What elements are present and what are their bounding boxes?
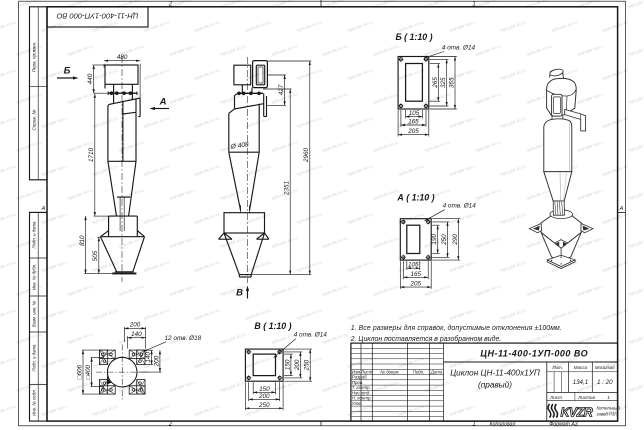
svg-text:12 отв. Ø18: 12 отв. Ø18	[165, 335, 202, 342]
svg-text:365: 365	[449, 77, 456, 88]
svg-text:150: 150	[284, 359, 291, 370]
svg-text:290: 290	[452, 234, 459, 246]
svg-text:Лит.: Лит.	[551, 365, 563, 370]
svg-text:Справ. №: Справ. №	[32, 110, 37, 131]
svg-text:250: 250	[441, 234, 448, 246]
svg-text:ЦН-11-400-1УП-000 ВО: ЦН-11-400-1УП-000 ВО	[480, 348, 588, 358]
svg-text:Лист: Лист	[549, 395, 562, 400]
svg-text:2960: 2960	[303, 148, 310, 164]
svg-text:250: 250	[304, 359, 311, 371]
svg-text:1 : 20: 1 : 20	[597, 379, 613, 386]
svg-text:140: 140	[131, 331, 142, 338]
svg-text:Лист: Лист	[360, 369, 373, 374]
svg-text:(правый): (правый)	[478, 381, 512, 390]
svg-text:265: 265	[432, 77, 439, 89]
svg-text:440: 440	[87, 73, 94, 84]
svg-text:325: 325	[440, 77, 447, 88]
svg-text:200: 200	[258, 393, 270, 400]
svg-text:810: 810	[79, 235, 86, 246]
svg-text:4 отв. Ø14: 4 отв. Ø14	[442, 44, 476, 51]
svg-text:205: 205	[410, 281, 422, 288]
svg-text:Копировал: Копировал	[490, 422, 516, 428]
svg-text:2. Циклон поставляется в разоб: 2. Циклон поставляется в разобранном вид…	[350, 335, 502, 343]
svg-text:А: А	[159, 97, 167, 108]
svg-text:KVZR: KVZR	[561, 406, 593, 420]
svg-text:А: А	[41, 206, 46, 212]
svg-text:А: А	[619, 206, 624, 212]
svg-text:Изм: Изм	[352, 369, 360, 374]
svg-text:505: 505	[92, 250, 99, 261]
svg-text:1: 1	[472, 1, 475, 7]
svg-text:завод РЗП: завод РЗП	[596, 412, 619, 417]
svg-text:Подп. и дата: Подп. и дата	[32, 344, 37, 372]
svg-text:2: 2	[168, 1, 173, 7]
svg-text:427: 427	[278, 84, 285, 95]
svg-text:Пров.: Пров.	[352, 380, 364, 385]
svg-text:1: 1	[472, 421, 475, 427]
svg-text:Взам. инв. №: Взам. инв. №	[32, 300, 37, 327]
svg-text:1: 1	[607, 395, 610, 401]
svg-text:Дата: Дата	[430, 369, 443, 374]
svg-text:Б ( 1:10 ): Б ( 1:10 )	[395, 32, 432, 42]
svg-text:105: 105	[408, 262, 419, 269]
svg-text:2351: 2351	[284, 181, 291, 196]
svg-text:1710: 1710	[88, 148, 95, 163]
svg-text:Утв.: Утв.	[352, 401, 362, 406]
svg-text:1. Все размеры для справок, до: 1. Все размеры для справок, допустимые о…	[351, 324, 562, 332]
svg-text:134,1: 134,1	[573, 379, 588, 386]
svg-text:165: 165	[411, 271, 422, 278]
svg-text:165: 165	[408, 119, 419, 126]
svg-text:А ( 1:10 ): А ( 1:10 )	[396, 193, 434, 203]
svg-text:□400: □400	[85, 364, 92, 379]
svg-text:Формат А3: Формат А3	[549, 422, 577, 428]
svg-text:105: 105	[409, 110, 420, 117]
svg-text:Подп.: Подп.	[413, 369, 425, 374]
svg-text:Инв. № подл.: Инв. № подл.	[32, 389, 37, 416]
svg-text:Циклон ЦН-11-400х1УП: Циклон ЦН-11-400х1УП	[450, 369, 540, 378]
svg-text:150: 150	[259, 386, 270, 393]
svg-text:Подп. и дата: Подп. и дата	[32, 221, 37, 249]
svg-text:4 отв. Ø14: 4 отв. Ø14	[294, 332, 328, 339]
svg-text:205: 205	[407, 128, 419, 135]
svg-text:250: 250	[258, 402, 270, 409]
svg-text:200: 200	[153, 355, 160, 367]
svg-text:Инв. № дубл.: Инв. № дубл.	[32, 264, 37, 290]
svg-text:Перв. примен.: Перв. примен.	[32, 42, 37, 73]
svg-text:В ( 1:10 ): В ( 1:10 )	[254, 321, 291, 331]
svg-text:190: 190	[431, 234, 438, 245]
svg-text:ЦН-11-400-1УП-000 ВО: ЦН-11-400-1УП-000 ВО	[56, 11, 138, 20]
svg-text:Котельный: Котельный	[597, 406, 621, 411]
svg-text:Масса: Масса	[574, 365, 588, 370]
svg-text:2: 2	[168, 422, 173, 428]
svg-text:Б: Б	[64, 66, 71, 77]
svg-text:480: 480	[117, 54, 128, 61]
svg-text:№ докум.: № докум.	[380, 369, 399, 374]
svg-text:200: 200	[294, 359, 301, 371]
svg-text:Нач.отд.: Нач.отд.	[352, 390, 371, 395]
svg-text:Листов: Листов	[577, 395, 595, 400]
svg-text:200: 200	[129, 322, 141, 329]
svg-text:Масштаб: Масштаб	[595, 365, 615, 370]
svg-text:4 отв. Ø14: 4 отв. Ø14	[443, 203, 477, 210]
svg-text:□606: □606	[76, 364, 83, 379]
svg-text:В: В	[236, 288, 243, 299]
svg-text:140: 140	[145, 352, 152, 363]
